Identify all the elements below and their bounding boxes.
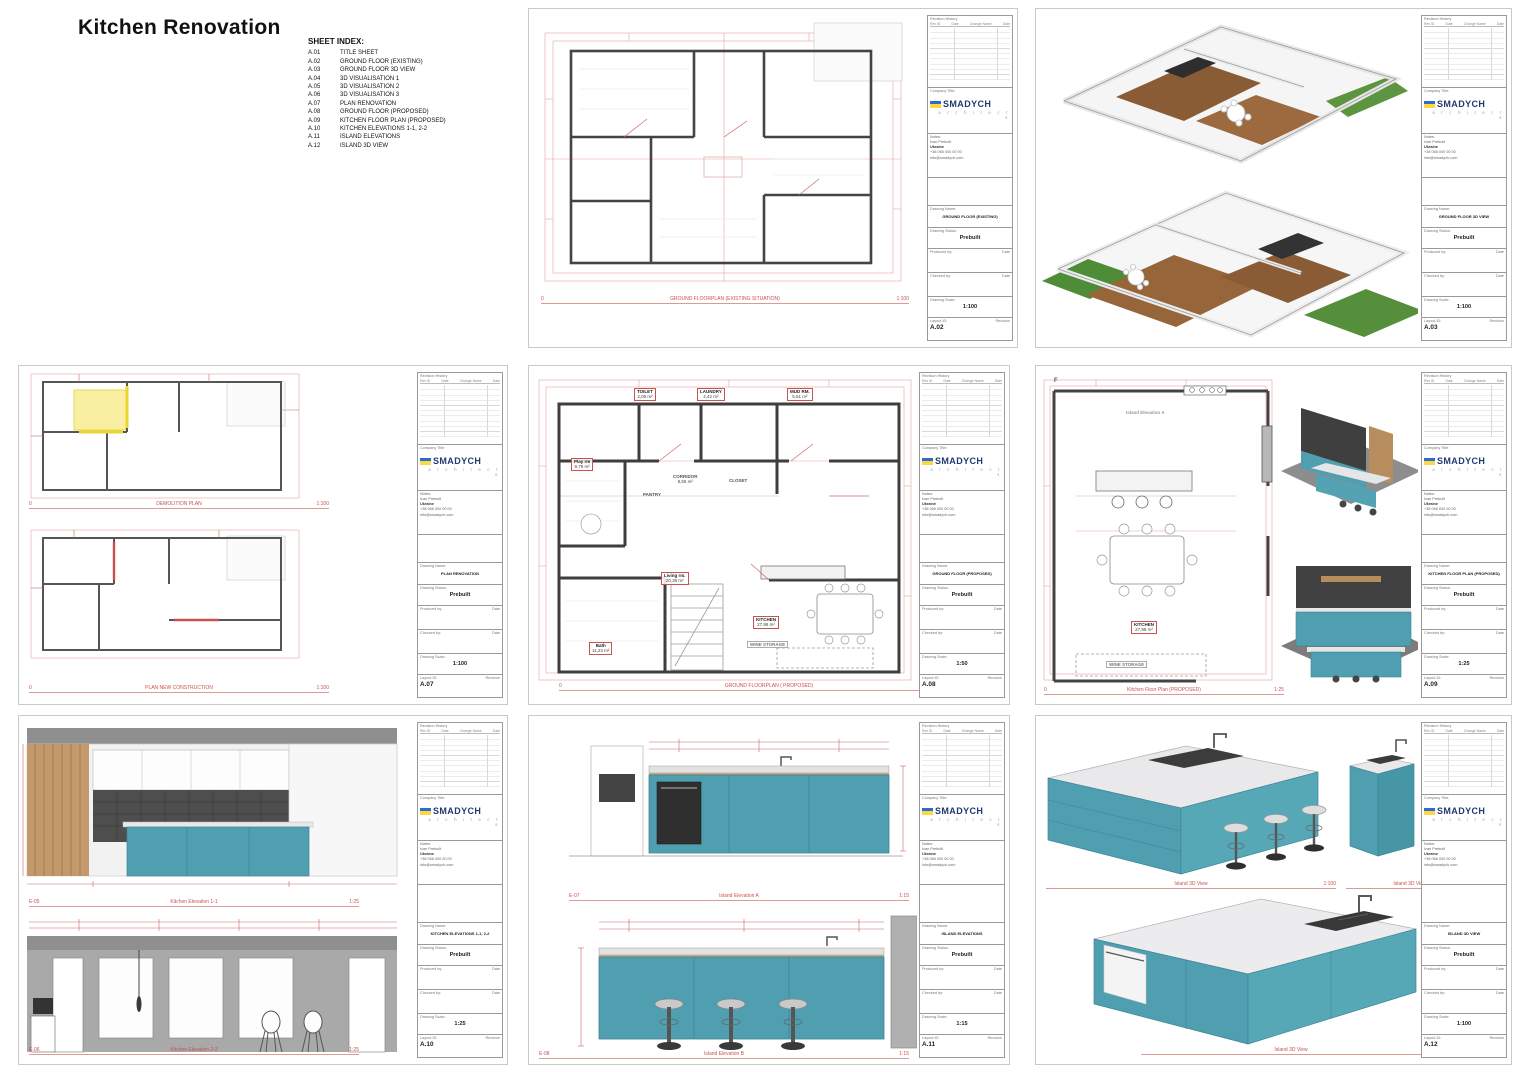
company-block: Company Title: SMADYCH a r c h i t e c t… (1422, 88, 1506, 134)
rev-col: Date (1497, 379, 1504, 383)
layout-id-block: Layout ID: Revision A.09 (1422, 675, 1506, 697)
rev-col: Date (1003, 22, 1010, 26)
title-block-spacer (418, 535, 502, 563)
drawing-name-block: Drawing Name: ISLAND 3D VIEW (1422, 923, 1506, 945)
rev-col: Date (1497, 729, 1504, 733)
drawing-name-block: Drawing Name: KITCHEN ELEVATIONS 1-1, 2-… (418, 923, 502, 945)
revision-history-label: Revision History (922, 374, 1002, 378)
revision-history: Revision History Rev ID Date Change Name… (920, 373, 1004, 445)
drawing-scale-label: Drawing Scale: (420, 655, 500, 659)
drawing-scale-label: Drawing Scale: (1424, 298, 1504, 302)
company-name: SMADYCH (433, 456, 481, 466)
caption-new-construction-plan: 0 PLAN NEW CONSTRUCTION 1:100 (29, 686, 329, 693)
island-3d-drawing (1036, 716, 1418, 1062)
rev-col: Change Name (962, 729, 984, 733)
checked-by-block: Checked by: Date (1422, 273, 1506, 297)
company-name: SMADYCH (1437, 806, 1485, 816)
checked-by-label: Checked by: (922, 991, 943, 1012)
drawing-status-value: Prebuilt (1424, 952, 1504, 958)
sheet-index-item: A.01TITLE SHEET (308, 49, 446, 57)
rev-col: Change Name (460, 379, 482, 383)
rev-col: Date (1497, 22, 1504, 26)
dining-table (1097, 524, 1197, 596)
drawing-status-block: Drawing Status: Prebuilt (1422, 945, 1506, 966)
revision-label: Revision (1489, 676, 1504, 680)
contact-block: Notes: Ivan Prebuilt Ukraine +38 066 000… (418, 491, 502, 535)
date-label: Date (1002, 274, 1010, 295)
produced-by-label: Produced by: (1424, 607, 1446, 628)
rev-col: Rev ID (420, 729, 430, 733)
title-block: Revision History Rev ID Date Change Name… (927, 15, 1013, 341)
drawing-name-block: Drawing Name: GROUND FLOOR 3D VIEW (1422, 206, 1506, 228)
island-3d-view-bottom (1094, 896, 1416, 1044)
date-label: Date (492, 991, 500, 1012)
island-3d-view-end (1350, 740, 1414, 856)
company-block: Company Title: SMADYCH a r c h i t e c t… (920, 445, 1004, 491)
date-label: Date (1496, 607, 1504, 628)
rev-col: Change Name (1464, 379, 1486, 383)
drawing-scale-block: Drawing Scale: 1:50 (920, 654, 1004, 675)
title-block-spacer (1422, 885, 1506, 923)
drawing-status-block: Drawing Status: Prebuilt (1422, 228, 1506, 249)
company-name: SMADYCH (935, 806, 983, 816)
room-label-mud-rm: MUD RM.5,51 m² (787, 388, 813, 401)
sheet-index-item: A.03GROUND FLOOR 3D VIEW (308, 66, 446, 74)
revision-history-label: Revision History (1424, 724, 1504, 728)
drawing-name-value: ISLAND 3D VIEW (1424, 931, 1504, 936)
date-label: Date (994, 631, 1002, 652)
grid-marker-f: F (1052, 378, 1060, 385)
sheet-a11-island-elevations: E-07 Island Elevation A 1:15 E-08 Island… (528, 715, 1010, 1065)
produced-by-label: Produced by: (922, 607, 944, 628)
checked-by-block: Checked by: Date (418, 990, 502, 1014)
floor-plan-existing-drawing (529, 9, 924, 345)
checked-by-label: Checked by: (1424, 631, 1445, 652)
drawing-scale-value: 1:100 (930, 304, 1010, 310)
caption-ground-floor-existing: 0 GROUND FLOORPLAN (EXISTING SITUATION) … (541, 297, 909, 304)
kitchen-island (1096, 471, 1192, 491)
layout-id-value: A.10 (420, 1041, 500, 1048)
faucet (1214, 734, 1226, 748)
title-block-spacer (920, 535, 1004, 563)
date-label: Date (492, 967, 500, 988)
checked-by-block: Checked by: Date (418, 630, 502, 654)
sheet-index: SHEET INDEX: A.01TITLE SHEET A.02GROUND … (308, 38, 446, 150)
revision-rows (930, 28, 1010, 80)
dining-table (807, 584, 883, 644)
drawing-scale-block: Drawing Scale: 1:25 (1422, 654, 1506, 675)
rev-col: Date (995, 379, 1002, 383)
drawing-status-label: Drawing Status: (420, 586, 500, 590)
drawing-name-label: Drawing Name: (1424, 564, 1504, 568)
company-subtitle: a r c h i t e c t s (930, 110, 1010, 120)
sheet-index-item: A.043D VISUALISATION 1 (308, 75, 446, 83)
renovation-plans-drawing (19, 366, 414, 702)
revision-label: Revision (485, 676, 500, 680)
rev-col: Date (442, 379, 449, 383)
date-label: Date (1496, 967, 1504, 988)
drawing-status-label: Drawing Status: (1424, 946, 1504, 950)
company-block: Company Title: SMADYCH a r c h i t e c t… (1422, 795, 1506, 841)
title-block: Revision History Rev ID Date Change Name… (919, 372, 1005, 698)
rev-col: Date (442, 729, 449, 733)
checked-by-block: Checked by: Date (920, 630, 1004, 654)
contact-line: info@smadych.com (930, 156, 1010, 161)
drawing-status-label: Drawing Status: (922, 946, 1002, 950)
drawing-name-label: Drawing Name: (1424, 207, 1504, 211)
layout-id-value: A.11 (922, 1041, 1002, 1048)
ukraine-flag-icon (1424, 101, 1435, 108)
revision-label: Revision (1489, 319, 1504, 323)
layout-id-block: Layout ID: Revision A.03 (1422, 318, 1506, 340)
contact-line: info@smadych.com (922, 513, 1002, 518)
drawing-status-block: Drawing Status: Prebuilt (928, 228, 1012, 249)
revision-rows (420, 735, 500, 787)
revision-history: Revision History Rev ID Date Change Name… (418, 723, 502, 795)
company-block: Company Title: SMADYCH a r c h i t e c t… (418, 445, 502, 491)
sheet-index-item: A.02GROUND FLOOR (EXISTING) (308, 58, 446, 66)
sheet-a02-ground-floor-existing: 0 GROUND FLOORPLAN (EXISTING SITUATION) … (528, 8, 1018, 348)
layout-id-label: Layout ID: (420, 1036, 437, 1040)
room-label-toilet: TOILET2,06 m² (634, 388, 656, 401)
revision-history-label: Revision History (1424, 17, 1504, 21)
checked-by-block: Checked by: Date (928, 273, 1012, 297)
contact-block: Notes: Ivan Prebuilt Ukraine +38 066 000… (920, 841, 1004, 885)
page-title: Kitchen Renovation (78, 16, 281, 40)
company-title-label: Company Title: (1424, 89, 1504, 93)
titlesheet-page: { "page": { "title": "Kitchen Renovation… (0, 0, 1517, 1072)
revision-label: Revision (987, 676, 1002, 680)
kitchen-plan-drawing (1036, 366, 1418, 702)
room-label-kitchen: KITCHEN27,98 m² (753, 616, 779, 629)
date-label: Date (994, 967, 1002, 988)
layout-id-value: A.09 (1424, 681, 1504, 688)
drawing-name-block: Drawing Name: PLAN RENOVATION (418, 563, 502, 585)
ukraine-flag-icon (1424, 808, 1435, 815)
rev-col: Date (493, 379, 500, 383)
produced-by-block: Produced by: Date (920, 966, 1004, 990)
caption-island-elevation-b: E-08 Island Elevation B 1:15 (539, 1052, 909, 1059)
drawing-name-label: Drawing Name: (420, 564, 500, 568)
title-block: Revision History Rev ID Date Change Name… (919, 722, 1005, 1058)
revision-label: Revision (995, 319, 1010, 323)
island-elevations-drawing (529, 716, 917, 1062)
layout-id-block: Layout ID: Revision A.12 (1422, 1035, 1506, 1057)
revision-rows (1424, 735, 1504, 787)
revision-rows (922, 735, 1002, 787)
room-label-kitchen: KITCHEN27,98 m² (1131, 621, 1157, 634)
drawing-name-value: ISLAND ELEVATIONS (922, 931, 1002, 936)
ukraine-flag-icon (420, 458, 431, 465)
faucet (781, 757, 791, 766)
revision-history: Revision History Rev ID Date Change Name… (418, 373, 502, 445)
sheet-a09-kitchen-floor-plan: F Island Elevation A KITCHEN27,98 m² WIN… (1035, 365, 1512, 705)
kitchen-3d-view-top (1281, 408, 1418, 516)
revision-rows (922, 385, 1002, 437)
checked-by-label: Checked by: (420, 991, 441, 1012)
company-subtitle: a r c h i t e c t s (1424, 467, 1504, 477)
produced-by-block: Produced by: Date (920, 606, 1004, 630)
produced-by-label: Produced by: (420, 967, 442, 988)
produced-by-label: Produced by: (922, 967, 944, 988)
drawing-name-label: Drawing Name: (922, 924, 1002, 928)
drawing-status-block: Drawing Status: Prebuilt (1422, 585, 1506, 606)
stairs (671, 584, 723, 670)
sheet-index-item: A.11ISLAND ELEVATIONS (308, 133, 446, 141)
layout-id-value: A.03 (1424, 324, 1504, 331)
drawing-status-value: Prebuilt (922, 592, 1002, 598)
checked-by-label: Checked by: (1424, 991, 1445, 1012)
caption-demolition-plan: 0 DEMOLITION PLAN 1:100 (29, 502, 329, 509)
revision-history: Revision History Rev ID Date Change Name… (1422, 16, 1506, 88)
revision-rows (1424, 28, 1504, 80)
date-label: Date (1496, 631, 1504, 652)
drawing-status-value: Prebuilt (1424, 592, 1504, 598)
layout-id-value: A.07 (420, 681, 500, 688)
room-label-corridor: CORRIDOR8,55 m² (671, 474, 700, 485)
drawing-name-label: Drawing Name: (922, 564, 1002, 568)
drawing-status-value: Prebuilt (1424, 235, 1504, 241)
revision-history-label: Revision History (930, 17, 1010, 21)
floor-plan-proposed-drawing (529, 366, 917, 702)
layout-id-value: A.08 (922, 681, 1002, 688)
drawing-name-value: KITCHEN FLOOR PLAN (PROPOSED) (1424, 571, 1504, 576)
room-label-laundry: LAUNDRY4,42 m² (697, 388, 725, 401)
company-subtitle: a r c h i t e c t s (1424, 817, 1504, 827)
drawing-scale-value: 1:25 (1424, 661, 1504, 667)
drawing-scale-value: 1:15 (922, 1021, 1002, 1027)
faucet (1396, 740, 1406, 752)
produced-by-block: Produced by: Date (418, 966, 502, 990)
drawing-status-label: Drawing Status: (1424, 229, 1504, 233)
company-title-label: Company Title: (922, 446, 1002, 450)
sheet-a03-ground-floor-3d-view: Revision History Rev ID Date Change Name… (1035, 8, 1512, 348)
checked-by-label: Checked by: (420, 631, 441, 652)
rev-col: Rev ID (1424, 22, 1434, 26)
rev-col: Date (995, 729, 1002, 733)
layout-id-block: Layout ID: Revision A.07 (418, 675, 502, 697)
sheet-index-item: A.08GROUND FLOOR (PROPOSED) (308, 108, 446, 116)
title-block-spacer (418, 885, 502, 923)
revision-label: Revision (1489, 1036, 1504, 1040)
revision-label: Revision (485, 1036, 500, 1040)
company-name: SMADYCH (1437, 456, 1485, 466)
company-subtitle: a r c h i t e c t s (420, 467, 500, 477)
sheet-index-item: A.053D VISUALISATION 2 (308, 83, 446, 91)
produced-by-block: Produced by: Date (418, 606, 502, 630)
island-elevation-b (578, 916, 917, 1050)
date-label: Date (1496, 991, 1504, 1012)
ground-floor-3d-drawing (1036, 9, 1418, 345)
drawing-scale-value: 1:100 (1424, 1021, 1504, 1027)
date-label: Date (994, 991, 1002, 1012)
caption-island-3d-view-3: Island 3D View 1:100 (1141, 1048, 1441, 1055)
layout-id-label: Layout ID: (1424, 676, 1441, 680)
company-title-label: Company Title: (420, 796, 500, 800)
sheet-index-item: A.063D VISUALISATION 3 (308, 91, 446, 99)
rev-col: Date (1446, 379, 1453, 383)
rev-col: Change Name (1464, 729, 1486, 733)
drawing-name-label: Drawing Name: (930, 207, 1010, 211)
date-label: Date (994, 607, 1002, 628)
sheet-index-item: A.09KITCHEN FLOOR PLAN (PROPOSED) (308, 117, 446, 125)
drawing-scale-block: Drawing Scale: 1:100 (1422, 297, 1506, 318)
room-label-wine-storage: WINE STORAGE (1106, 661, 1147, 668)
produced-by-block: Produced by: Date (1422, 966, 1506, 990)
title-block: Revision History Rev ID Date Change Name… (417, 372, 503, 698)
drawing-name-label: Drawing Name: (420, 924, 500, 928)
company-block: Company Title: SMADYCH a r c h i t e c t… (928, 88, 1012, 134)
room-label-bath: Bath11,23 m² (589, 642, 612, 655)
company-subtitle: a r c h i t e c t s (922, 817, 1002, 827)
drawing-name-block: Drawing Name: GROUND FLOOR (EXISTING) (928, 206, 1012, 228)
title-block: Revision History Rev ID Date Change Name… (1421, 372, 1507, 698)
company-block: Company Title: SMADYCH a r c h i t e c t… (418, 795, 502, 841)
company-title-label: Company Title: (1424, 446, 1504, 450)
island-elevation-a (569, 739, 906, 856)
drawing-name-value: PLAN RENOVATION (420, 571, 500, 576)
company-name: SMADYCH (943, 99, 991, 109)
company-subtitle: a r c h i t e c t s (922, 467, 1002, 477)
revision-rows (420, 385, 500, 437)
drawing-status-block: Drawing Status: Prebuilt (418, 585, 502, 606)
date-label: Date (1002, 250, 1010, 271)
revision-history: Revision History Rev ID Date Change Name… (1422, 373, 1506, 445)
faucet (1359, 896, 1371, 912)
revision-history-label: Revision History (1424, 374, 1504, 378)
company-name: SMADYCH (433, 806, 481, 816)
drawing-scale-label: Drawing Scale: (1424, 655, 1504, 659)
drawing-name-label: Drawing Name: (1424, 924, 1504, 928)
room-label-pantry: PANTRY (641, 492, 663, 497)
sheet-index-heading: SHEET INDEX: (308, 38, 446, 46)
contact-line: info@smadych.com (1424, 863, 1504, 868)
rev-col: Change Name (1464, 22, 1486, 26)
contact-line: info@smadych.com (1424, 156, 1504, 161)
company-title-label: Company Title: (930, 89, 1010, 93)
layout-id-label: Layout ID: (1424, 319, 1441, 323)
title-block: Revision History Rev ID Date Change Name… (1421, 722, 1507, 1058)
sheet-index-item: A.10KITCHEN ELEVATIONS 1-1, 2-2 (308, 125, 446, 133)
contact-block: Notes: Ivan Prebuilt Ukraine +38 066 000… (928, 134, 1012, 178)
rev-col: Rev ID (1424, 729, 1434, 733)
rev-col: Rev ID (420, 379, 430, 383)
drawing-scale-label: Drawing Scale: (420, 1015, 500, 1019)
checked-by-block: Checked by: Date (1422, 630, 1506, 654)
drawing-scale-label: Drawing Scale: (922, 655, 1002, 659)
drawing-scale-label: Drawing Scale: (1424, 1015, 1504, 1019)
rev-col: Date (952, 22, 959, 26)
sheet-index-item: A.07PLAN RENOVATION (308, 100, 446, 108)
date-label: Date (1496, 274, 1504, 295)
room-label-living-rm: Living rm.20,39 m² (661, 572, 689, 585)
revision-history-label: Revision History (420, 374, 500, 378)
checked-by-block: Checked by: Date (920, 990, 1004, 1014)
company-subtitle: a r c h i t e c t s (1424, 110, 1504, 120)
drawing-status-value: Prebuilt (930, 235, 1010, 241)
layout-id-block: Layout ID: Revision A.10 (418, 1035, 502, 1057)
kitchen-island (761, 566, 845, 579)
rev-col: Date (493, 729, 500, 733)
title-block-spacer (928, 178, 1012, 206)
kitchen-3d-view-bottom (1281, 566, 1418, 683)
company-block: Company Title: SMADYCH a r c h i t e c t… (920, 795, 1004, 841)
drawing-name-block: Drawing Name: GROUND FLOOR (PROPOSED) (920, 563, 1004, 585)
sheet-a07-plan-renovation: 0 DEMOLITION PLAN 1:100 0 PLAN NEW CONST… (18, 365, 508, 705)
caption-ground-floor-proposed: 0 GROUND FLOORPLAN ( PROPOSED) 1:50 (559, 684, 979, 691)
drawing-scale-block: Drawing Scale: 1:15 (920, 1014, 1004, 1035)
rev-col: Date (944, 379, 951, 383)
drawing-scale-value: 1:50 (922, 661, 1002, 667)
layout-id-label: Layout ID: (922, 1036, 939, 1040)
revision-history: Revision History Rev ID Date Change Name… (920, 723, 1004, 795)
date-label: Date (1496, 250, 1504, 271)
produced-by-block: Produced by: Date (1422, 249, 1506, 273)
rev-col: Rev ID (930, 22, 940, 26)
revision-history: Revision History Rev ID Date Change Name… (1422, 723, 1506, 795)
sheet-a12-island-3d-view: Island 3D View 1:100 Island 3D View 1:10… (1035, 715, 1512, 1065)
ukraine-flag-icon (922, 808, 933, 815)
rev-col: Change Name (970, 22, 992, 26)
drawing-status-label: Drawing Status: (922, 586, 1002, 590)
title-block: Revision History Rev ID Date Change Name… (417, 722, 503, 1058)
axon-view-2 (1042, 193, 1418, 337)
ukraine-flag-icon (922, 458, 933, 465)
checked-by-label: Checked by: (930, 274, 951, 295)
layout-id-label: Layout ID: (922, 676, 939, 680)
ukraine-flag-icon (420, 808, 431, 815)
company-name: SMADYCH (935, 456, 983, 466)
company-block: Company Title: SMADYCH a r c h i t e c t… (1422, 445, 1506, 491)
drawing-scale-label: Drawing Scale: (930, 298, 1010, 302)
caption-kitchen-elevation-1-1: E-05 Kitchen Elevation 1-1 1:25 (29, 900, 359, 907)
room-label-closet: CLOSET (727, 478, 749, 483)
checked-by-block: Checked by: Date (1422, 990, 1506, 1014)
produced-by-label: Produced by: (420, 607, 442, 628)
revision-history-label: Revision History (922, 724, 1002, 728)
island-3d-view-main (1048, 734, 1326, 874)
contact-block: Notes: Ivan Prebuilt Ukraine +38 066 000… (920, 491, 1004, 535)
drawing-name-value: KITCHEN ELEVATIONS 1-1, 2-2 (420, 931, 500, 936)
date-label: Date (492, 607, 500, 628)
drawing-name-block: Drawing Name: ISLAND ELEVATIONS (920, 923, 1004, 945)
rev-col: Rev ID (1424, 379, 1434, 383)
drawing-name-value: GROUND FLOOR (EXISTING) (930, 214, 1010, 219)
title-block-spacer (1422, 535, 1506, 563)
room-label-play-rm: Play rm9,79 m² (571, 458, 593, 471)
rev-col: Rev ID (922, 729, 932, 733)
company-subtitle: a r c h i t e c t s (420, 817, 500, 827)
drawing-scale-block: Drawing Scale: 1:100 (1422, 1014, 1506, 1035)
produced-by-label: Produced by: (1424, 967, 1446, 988)
rev-col: Rev ID (922, 379, 932, 383)
checked-by-label: Checked by: (922, 631, 943, 652)
drawing-status-block: Drawing Status: Prebuilt (418, 945, 502, 966)
company-title-label: Company Title: (922, 796, 1002, 800)
faucet (827, 937, 837, 946)
drawing-status-label: Drawing Status: (420, 946, 500, 950)
new-construction-plan (31, 530, 299, 658)
date-label: Date (492, 631, 500, 652)
contact-line: info@smadych.com (1424, 513, 1504, 518)
elevation-marker: Island Elevation A (1124, 410, 1167, 415)
title-block-spacer (920, 885, 1004, 923)
layout-id-block: Layout ID: Revision A.02 (928, 318, 1012, 340)
produced-by-label: Produced by: (1424, 250, 1446, 271)
layout-id-block: Layout ID: Revision A.08 (920, 675, 1004, 697)
rev-col: Change Name (460, 729, 482, 733)
company-name: SMADYCH (1437, 99, 1485, 109)
